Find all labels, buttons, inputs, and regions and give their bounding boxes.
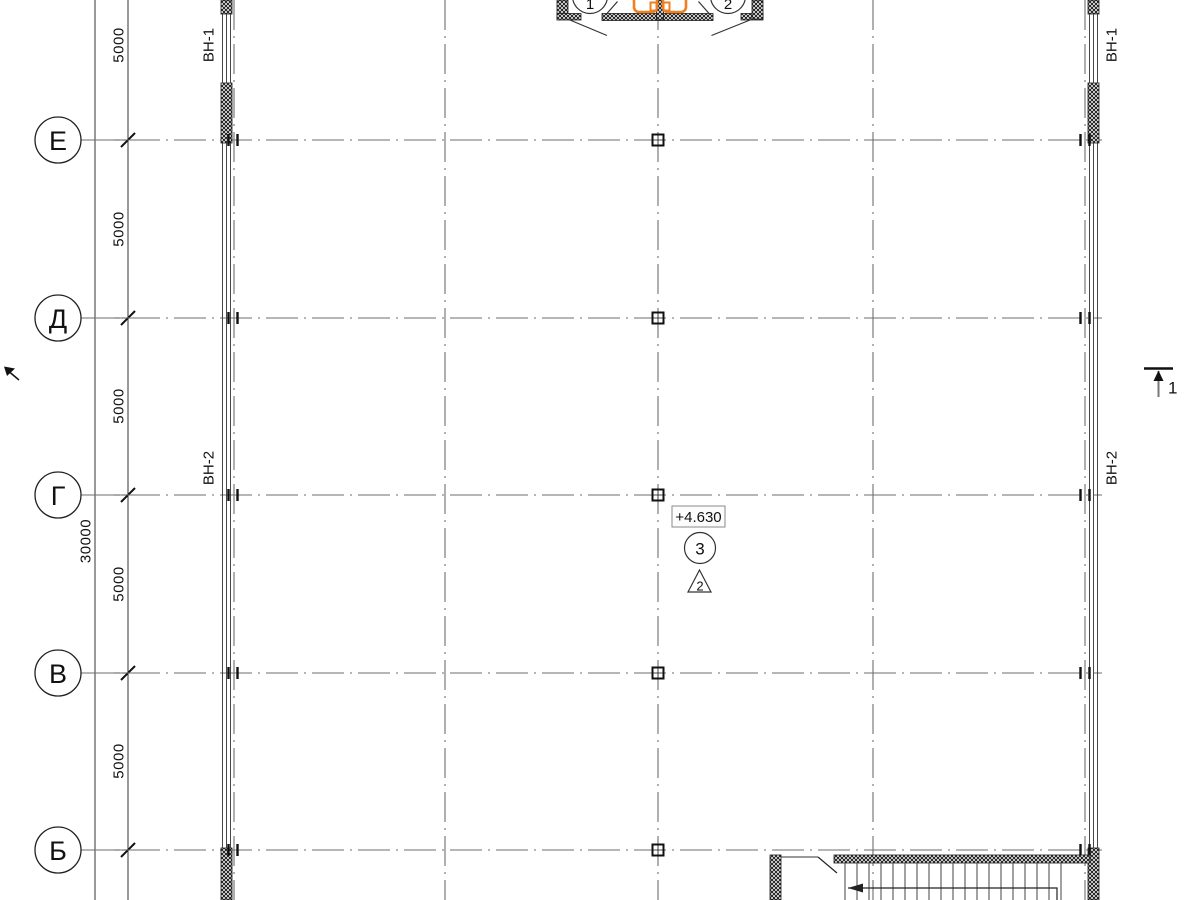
section-marker-right: 1 [1144,369,1177,398]
entrance-vestibule: 1 2 [557,0,763,36]
callout-2: 2 [724,0,732,13]
wall-tag-vn1-left: ВН-1 [201,28,218,62]
node-number: 3 [695,540,704,559]
dim-5000: 5000 [111,388,128,423]
axis-label: Д [49,304,67,334]
axis-label: Б [49,836,67,866]
elevation-mark: +4.630 [672,506,725,527]
axis-label: Е [49,126,67,156]
floor-plan-drawing: Е Д Г В Б 5000 5000 5000 5000 5000 30000… [0,0,1200,900]
section-marker-left [4,367,19,381]
center-annotations: +4.630 3 2 [672,506,725,594]
axis-bubble-D: Д [35,295,81,341]
wall-type-tags: ВН-1 ВН-2 ВН-1 ВН-2 [201,28,1121,485]
section-number: 1 [1168,379,1177,398]
elevation-value: +4.630 [675,509,721,526]
axis-bubble-E: Е [35,117,81,163]
dim-5000: 5000 [111,27,128,62]
floor-plan-sheet: Е Д Г В Б 5000 5000 5000 5000 5000 30000… [0,0,1200,900]
row-axis-bubbles: Е Д Г В Б [35,117,81,873]
callout-1: 1 [586,0,594,13]
axis-bubble-B: Б [35,827,81,873]
wall-tag-vn2-right: ВН-2 [1104,451,1121,485]
dim-5000: 5000 [111,211,128,246]
detail-triangle-marker: 2 [688,570,711,594]
column-marker [653,313,664,324]
axis-label: В [49,659,67,689]
column-marker [653,668,664,679]
dim-30000: 30000 [78,519,95,563]
stair-direction-arrow [848,884,863,893]
dim-5000: 5000 [111,566,128,601]
wall-tag-vn1-right: ВН-1 [1104,28,1121,62]
column-marker [653,845,664,856]
column-marker [653,135,664,146]
stair-treads [845,863,1061,900]
node-marker: 3 [685,533,716,564]
column-marker [653,490,664,501]
wall-tag-vn2-left: ВН-2 [201,451,218,485]
left-exterior-wall [221,0,238,900]
entrance-splay-walls [568,19,753,36]
axis-bubble-V: В [35,650,81,696]
right-exterior-wall [1081,0,1100,900]
stairwell [770,855,1090,900]
axis-label: Г [51,481,66,511]
axis-bubble-G: Г [35,472,81,518]
dim-5000: 5000 [111,743,128,778]
detail-number: 2 [696,579,703,594]
